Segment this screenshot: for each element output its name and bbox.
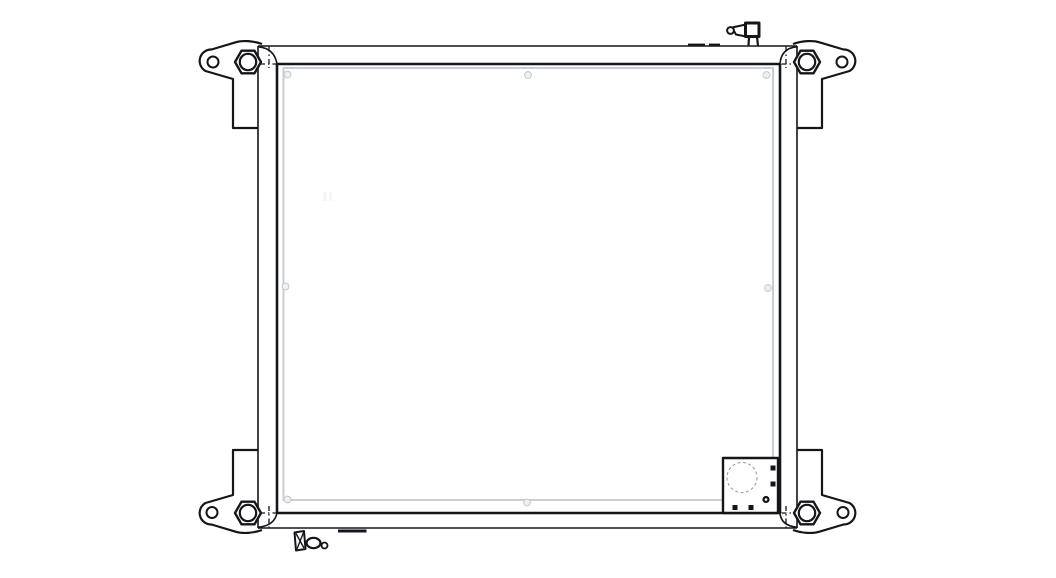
ear-hole-bottom-right <box>838 507 849 518</box>
marker-bottom-left <box>284 496 291 503</box>
connector-box-outline <box>723 458 778 513</box>
marker-top-right <box>763 72 770 79</box>
hex-bolt-bottom-left <box>235 502 261 525</box>
filler-nozzle-tip <box>727 27 734 34</box>
drain-fitting-bottom <box>295 531 328 551</box>
hex-bolt-top-left <box>235 51 261 74</box>
filler-leg-right <box>757 37 758 46</box>
hex-bolt-top-right <box>794 51 820 74</box>
filler-body <box>746 23 760 37</box>
drain-valve-tip <box>322 543 328 549</box>
filler-leg-left <box>749 37 750 46</box>
connector-box-bottom-right <box>723 458 778 513</box>
ear-hole-top-left <box>208 57 219 68</box>
radiator-assembly-drawing <box>0 0 1056 578</box>
mounting-tab-top-a <box>688 44 705 47</box>
hex-bolt-bottom-right <box>794 502 820 525</box>
fillet-bottom-left <box>259 513 278 527</box>
mounting-tab-bottom <box>338 530 367 533</box>
fastener-dot-center <box>765 498 768 501</box>
marker-top-center <box>525 72 532 79</box>
technical-drawing-canvas <box>0 0 1056 578</box>
ear-hole-bottom-left <box>207 507 218 518</box>
drain-valve-knob <box>307 538 321 548</box>
filler-fitting-top <box>727 23 759 46</box>
ear-hole-top-right <box>837 57 848 68</box>
marker-bottom-center <box>524 499 531 506</box>
marker-top-left <box>284 71 291 78</box>
marker-right-middle <box>765 285 772 292</box>
mounting-tab-top-b <box>709 44 720 47</box>
core-panel <box>284 68 774 500</box>
marker-left-middle <box>282 283 289 290</box>
